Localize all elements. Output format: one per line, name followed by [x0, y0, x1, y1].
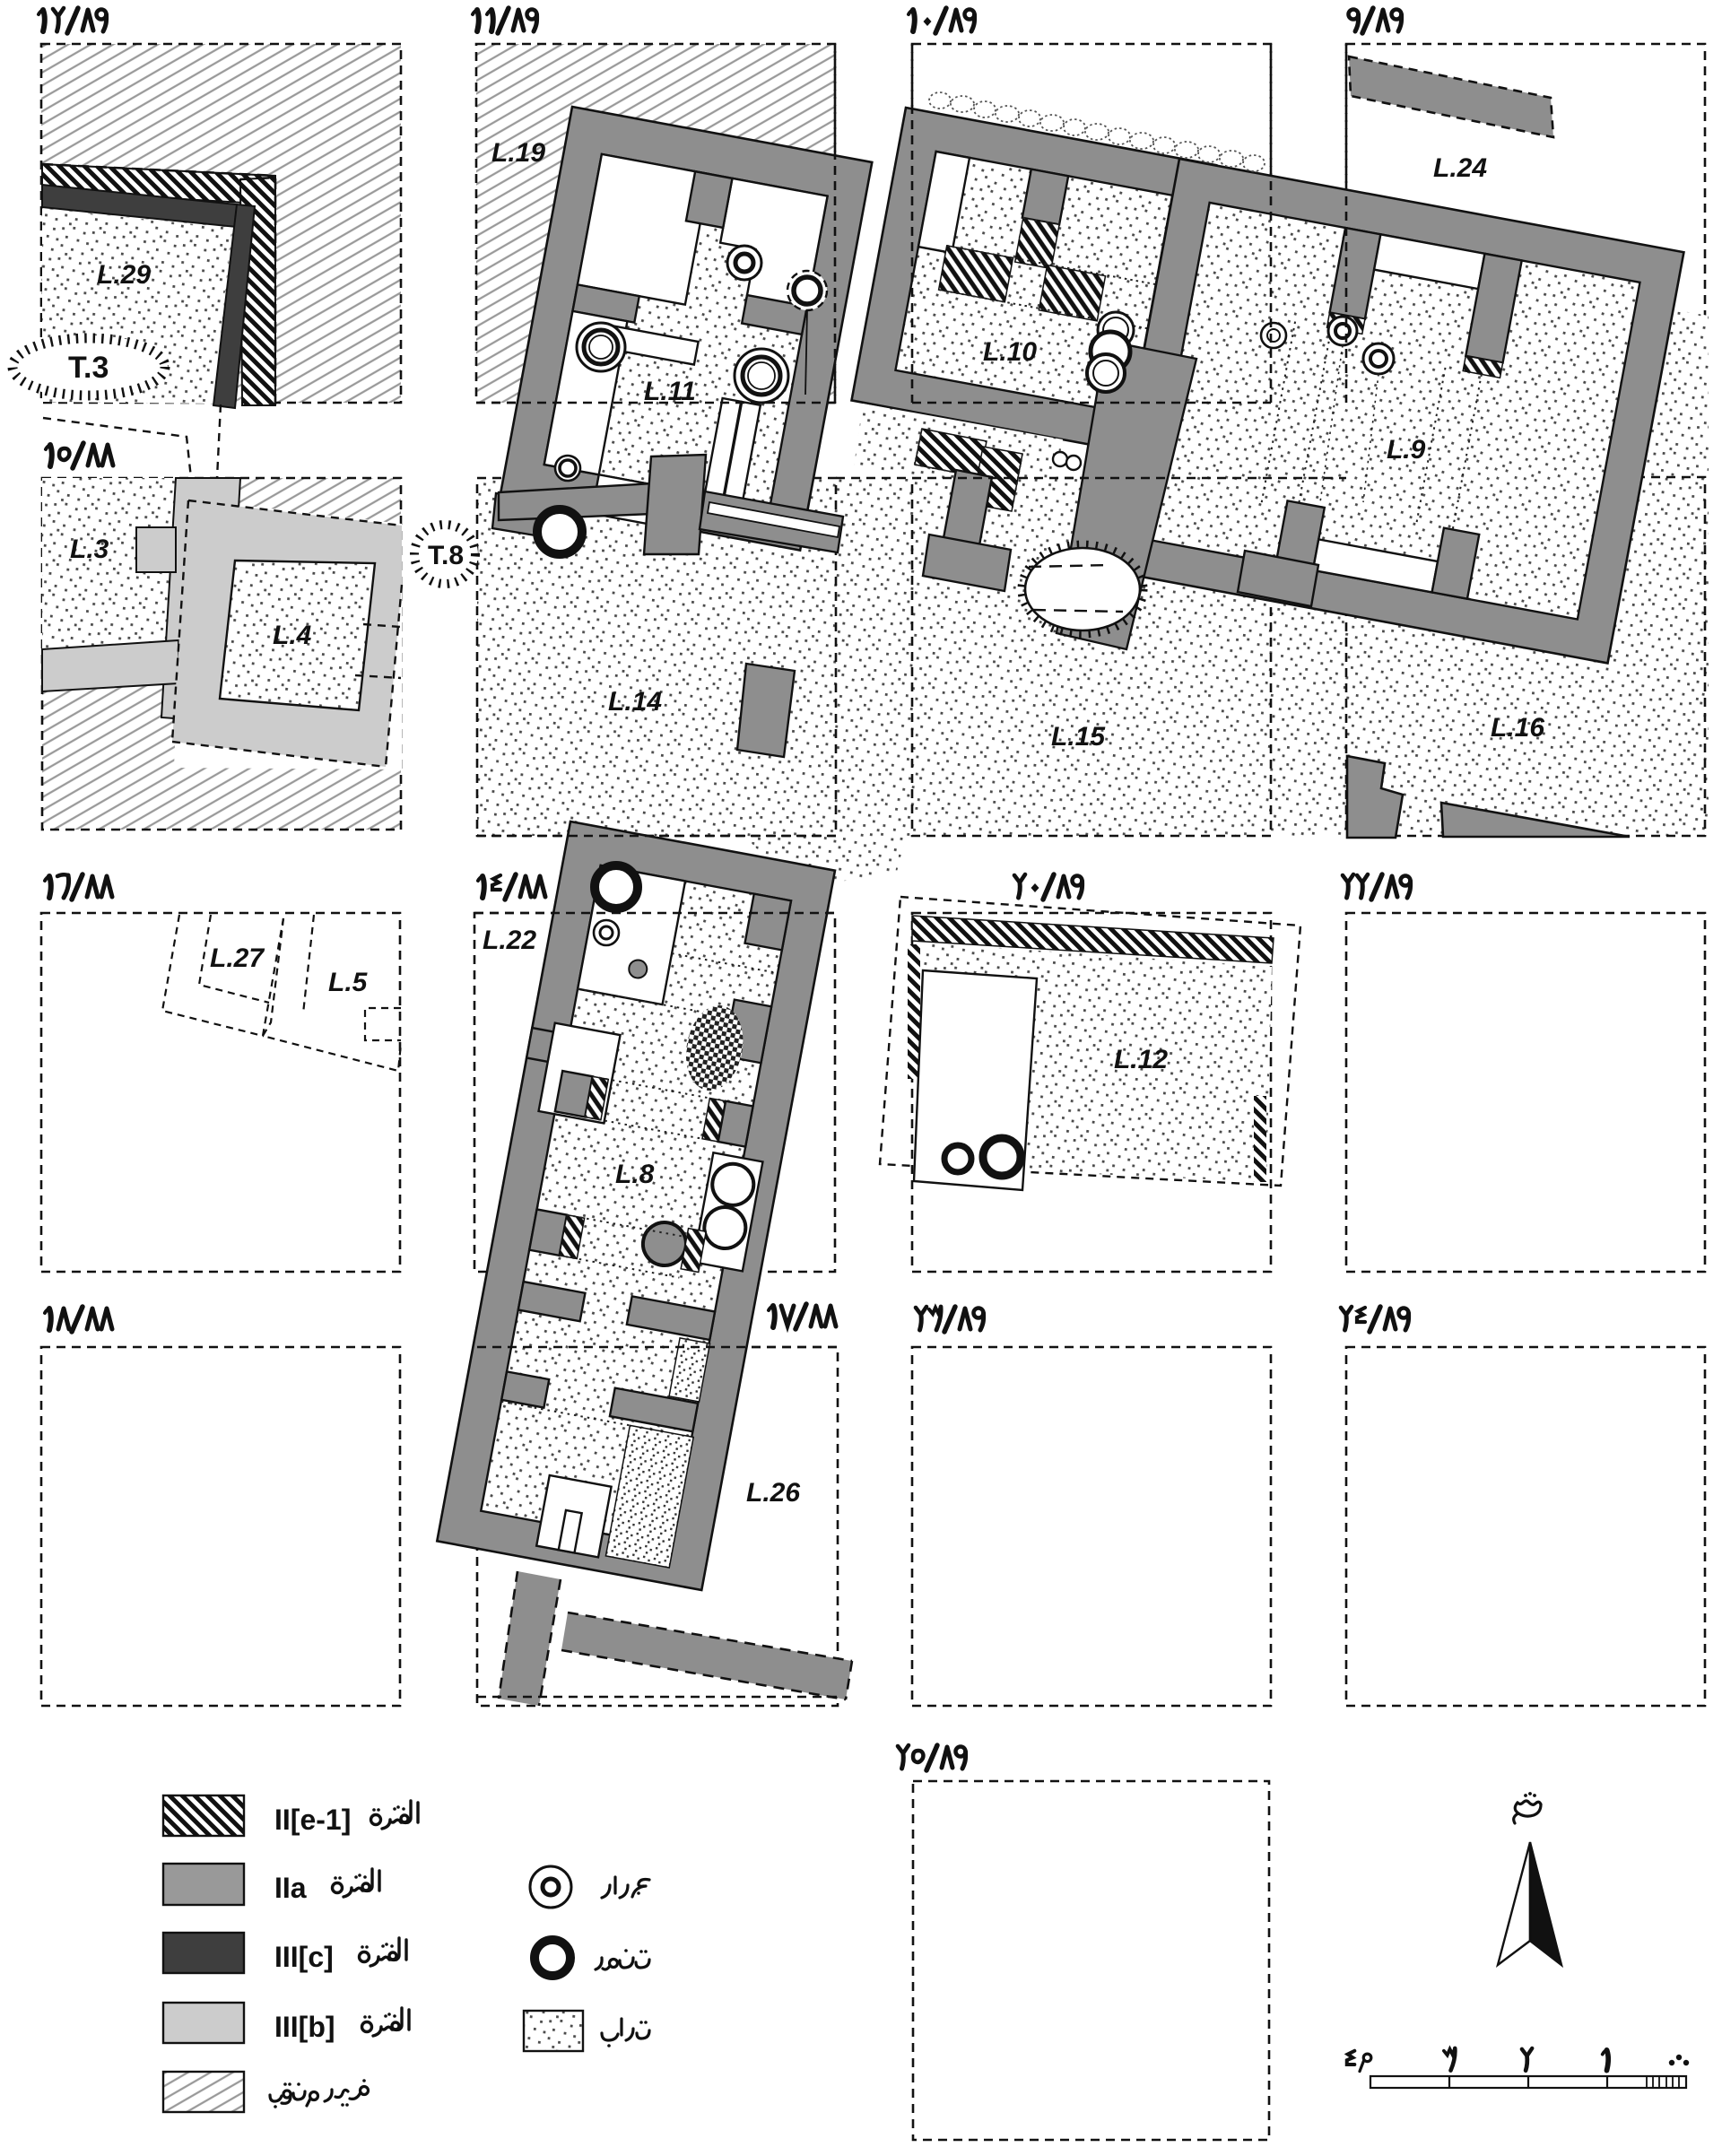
svg-text:L.8: L.8: [615, 1160, 655, 1189]
svg-text:III[b]: III[b]: [274, 2011, 335, 2043]
svg-text:L.4: L.4: [273, 621, 312, 650]
svg-text:L.11: L.11: [644, 377, 696, 406]
svg-text:L.27: L.27: [210, 943, 265, 973]
svg-text:L.29: L.29: [97, 260, 151, 290]
svg-text:L.22: L.22: [483, 926, 536, 955]
svg-text:II[e-1]: II[e-1]: [274, 1804, 351, 1836]
svg-text:T.3: T.3: [68, 351, 109, 385]
svg-text:L.9: L.9: [1387, 435, 1426, 465]
svg-text:L.12: L.12: [1114, 1045, 1168, 1074]
svg-text:L.15: L.15: [1051, 722, 1106, 752]
svg-text:L.19: L.19: [491, 138, 545, 168]
svg-text:L.24: L.24: [1433, 153, 1487, 183]
svg-text:L.5: L.5: [328, 968, 369, 997]
svg-text:IIa: IIa: [274, 1872, 307, 1904]
svg-text:III[c]: III[c]: [274, 1941, 334, 1973]
svg-text:L.16: L.16: [1491, 713, 1544, 743]
svg-text:L.3: L.3: [70, 535, 109, 564]
svg-text:L.26: L.26: [746, 1478, 800, 1508]
svg-text:T.8: T.8: [428, 541, 464, 570]
svg-text:L.10: L.10: [983, 337, 1037, 367]
svg-text:L.14: L.14: [608, 687, 662, 717]
